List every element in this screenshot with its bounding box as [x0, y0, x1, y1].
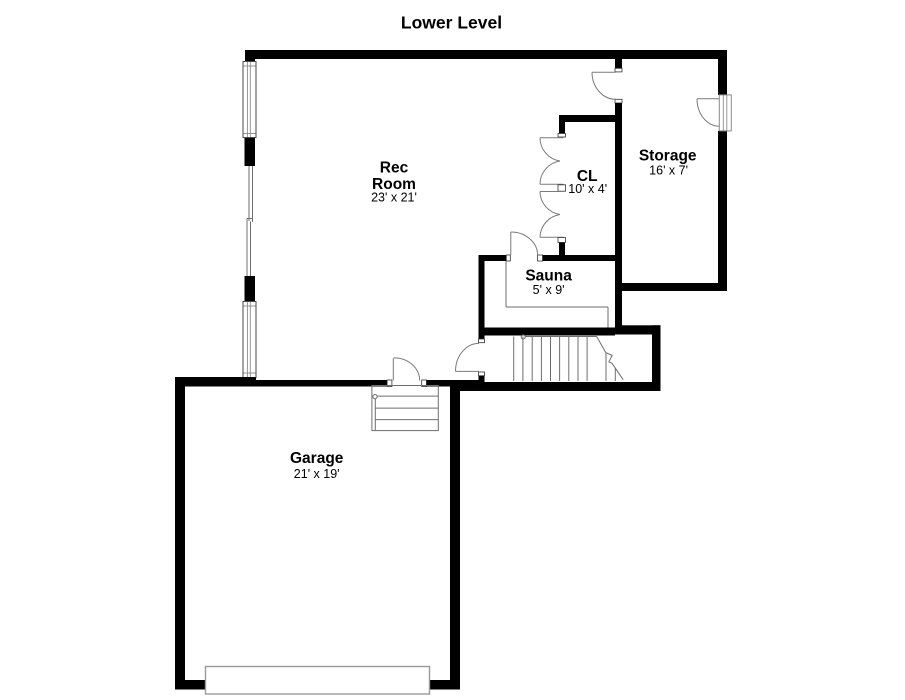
- svg-text:Sauna: Sauna: [525, 268, 572, 285]
- svg-text:Rec: Rec: [380, 159, 409, 176]
- svg-text:16' x 7': 16' x 7': [649, 164, 688, 178]
- svg-text:23' x 21': 23' x 21': [371, 190, 417, 204]
- svg-text:21' x 19': 21' x 19': [294, 467, 340, 481]
- svg-text:5' x 9': 5' x 9': [533, 283, 565, 297]
- svg-text:Garage: Garage: [290, 450, 344, 467]
- svg-text:Lower Level: Lower Level: [401, 13, 502, 33]
- svg-text:Storage: Storage: [639, 148, 697, 165]
- svg-text:10' x 4': 10' x 4': [568, 182, 607, 196]
